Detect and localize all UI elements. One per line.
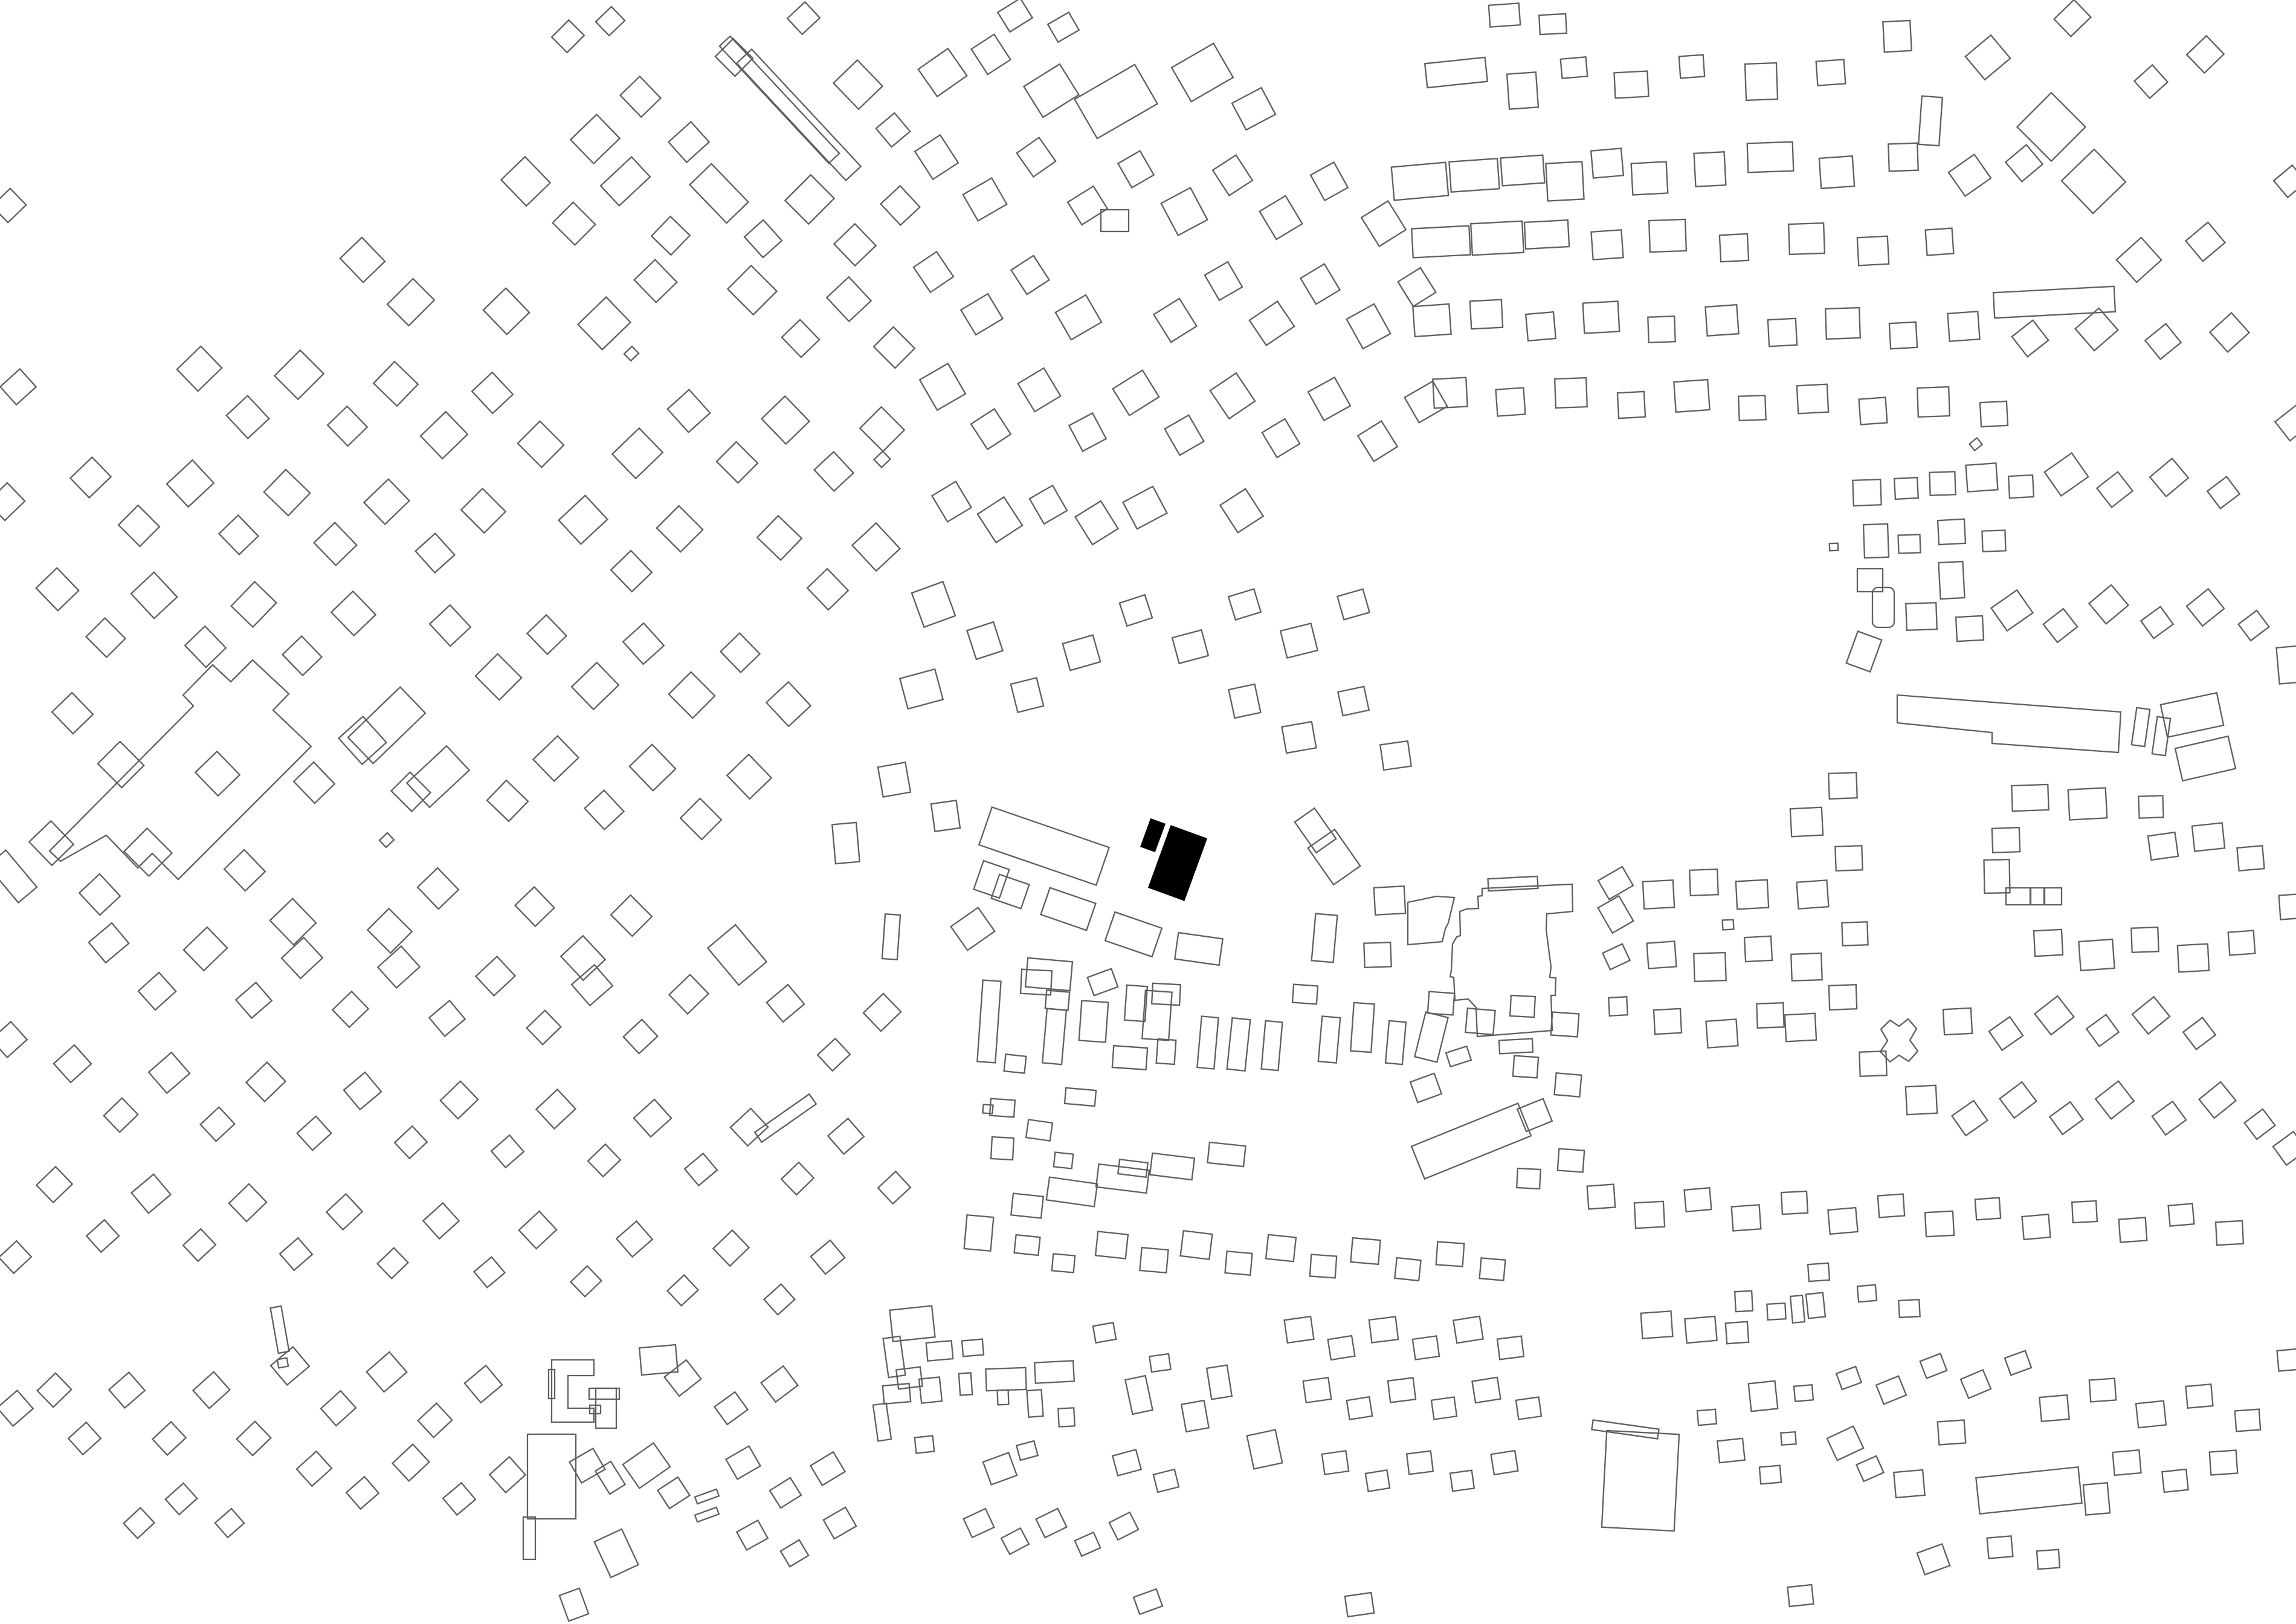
map-background: [0, 0, 2296, 1624]
site-plan-page: [0, 0, 2296, 1624]
site-plan-svg: [0, 0, 2296, 1624]
